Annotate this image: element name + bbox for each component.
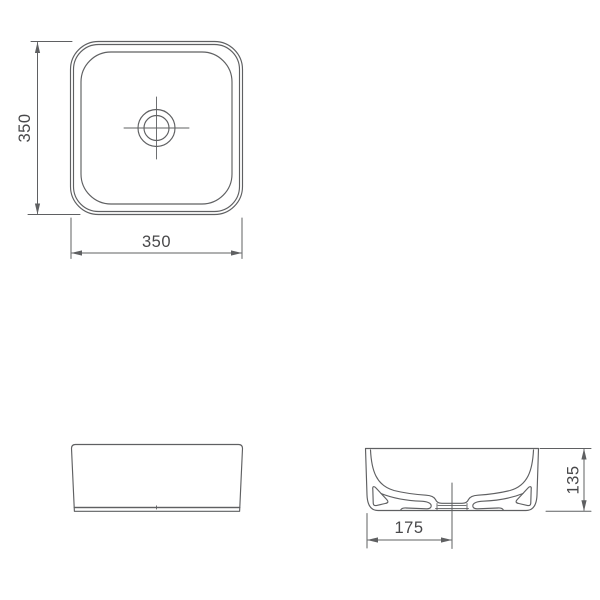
- dim-label-top-width: 350: [142, 233, 171, 251]
- dim-label-section-height: 135: [564, 465, 582, 494]
- dim-label-drain-offset: 175: [394, 519, 423, 537]
- dim-label-top-height: 350: [16, 113, 34, 142]
- washbasin-technical-drawing: 350 350 135 175: [0, 0, 600, 600]
